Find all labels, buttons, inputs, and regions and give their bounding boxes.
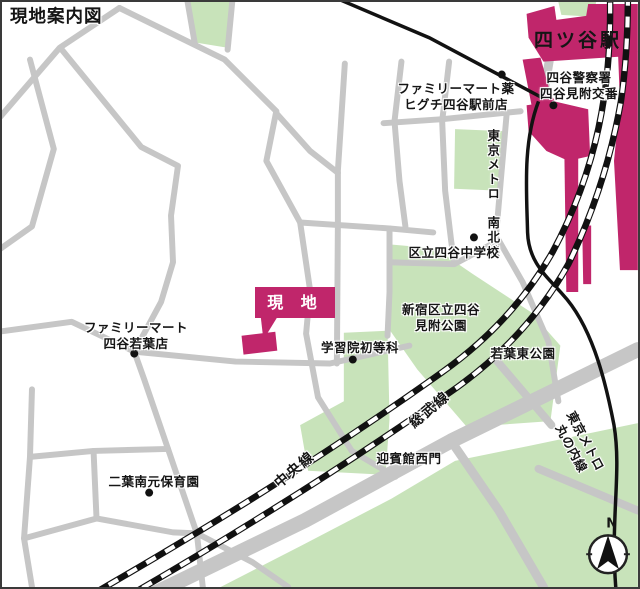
map-title: 現地案内図 — [10, 6, 103, 29]
label-police-line1: 四谷警察署 — [540, 70, 618, 86]
label-familymart-higuchi-line2: ヒグチ四谷駅前店 — [397, 97, 514, 113]
label-familymart-higuchi: ファミリーマート薬 ヒグチ四谷駅前店 — [397, 81, 514, 114]
label-wakaba-park: 若葉東公園 — [490, 346, 555, 362]
poi-dot-familymart-higuchi — [498, 71, 506, 79]
label-police-line2: 四谷見附交番 — [540, 86, 618, 102]
label-familymart-wakaba: ファミリーマート 四谷若葉店 — [84, 320, 188, 353]
label-futaba-nursery: 二葉南元保育園 — [108, 474, 199, 490]
label-police-koban: 四谷警察署 四谷見附交番 — [540, 70, 618, 103]
label-yotsuya-station: 四ツ谷駅 — [534, 29, 622, 54]
label-mitsuke-park: 新宿区立四谷 見附公園 — [402, 302, 480, 335]
poi-dot-police — [549, 101, 557, 109]
site-building — [242, 332, 278, 355]
poi-dot-gakushuin — [349, 356, 357, 364]
label-namboku-line1: 東京メトロ — [485, 129, 500, 202]
compass-north-label: N — [606, 517, 617, 534]
label-familymart-wakaba-line1: ファミリーマート — [84, 320, 188, 336]
label-familymart-wakaba-line2: 四谷若葉店 — [84, 336, 188, 352]
label-junior-high: 区立四谷中学校 — [408, 245, 499, 261]
label-geihinkan-gate: 迎賓館西門 — [376, 451, 441, 467]
poi-dot-junior-high — [470, 233, 478, 241]
site-guide-map: 現地案内図 四ツ谷駅 四谷警察署 四谷見附交番 ファミリーマート薬 ヒグチ四谷駅… — [0, 0, 640, 589]
label-mitsuke-park-line2: 見附公園 — [402, 318, 480, 334]
site-callout: 現 地 — [255, 287, 335, 318]
label-mitsuke-park-line1: 新宿区立四谷 — [402, 302, 480, 318]
label-familymart-higuchi-line1: ファミリーマート薬 — [397, 81, 514, 97]
label-gakushuin: 学習院初等科 — [321, 340, 399, 356]
label-metro-namboku-line: 東京メトロ南北線 — [484, 129, 500, 259]
site-marker — [242, 314, 280, 355]
